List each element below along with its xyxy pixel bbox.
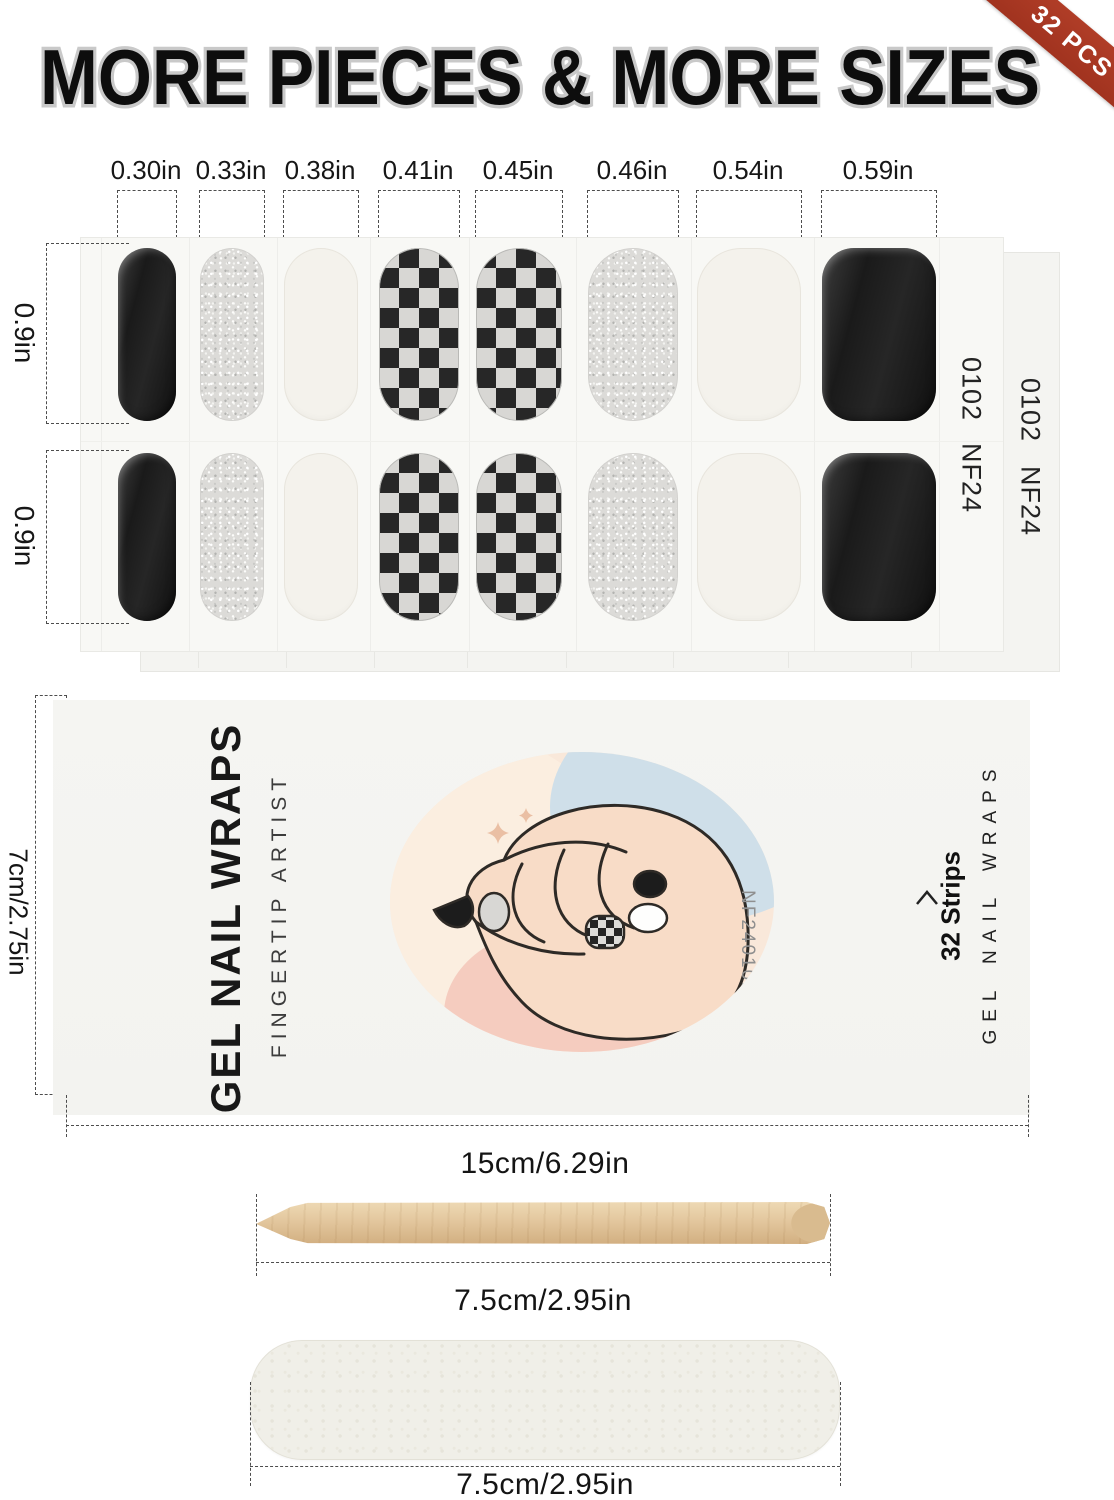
nail-strip — [697, 453, 801, 621]
size-label-1: 0.30in — [98, 155, 194, 186]
sheet-column-divider — [277, 238, 278, 651]
back-sheet-cutline — [566, 652, 567, 668]
white-nail — [629, 904, 667, 932]
front-sheet-code-bottom: NF24 — [956, 443, 987, 513]
nail-strip — [588, 248, 678, 421]
nail-strip — [284, 453, 358, 621]
sheet-row-divider — [81, 441, 1003, 442]
back-sheet-cutline — [374, 652, 375, 668]
size-label-5: 0.45in — [470, 155, 566, 186]
back-sheet-cutline — [673, 652, 674, 668]
headline-text: MORE PIECES & MORE SIZES — [40, 36, 1040, 121]
file-length-label: 7.5cm/2.95in — [395, 1468, 695, 1500]
package-height-label: 7cm/2.75in — [3, 848, 34, 975]
file-measure-tick-right — [840, 1382, 841, 1486]
black-oval-nail — [634, 871, 666, 897]
size-label-6: 0.46in — [584, 155, 680, 186]
cuticle-stick — [256, 1202, 830, 1244]
height-bracket-row2 — [46, 450, 129, 624]
nail-strip — [379, 453, 459, 621]
page-root: MORE PIECES & MORE SIZES 32 PCS 0.30in 0… — [0, 0, 1114, 1500]
sheet-column-divider — [469, 238, 470, 651]
stick-measure-tick-left — [256, 1194, 257, 1276]
size-label-3: 0.38in — [272, 155, 368, 186]
back-sheet-cutline — [198, 652, 199, 668]
size-label-4: 0.41in — [370, 155, 466, 186]
nail-sheet-front — [80, 237, 1004, 652]
width-measure-tick-right — [1028, 1095, 1029, 1137]
package-design-code: NF240102 — [737, 890, 758, 995]
width-measure-tick-left — [66, 1095, 67, 1137]
pcs-ribbon: 32 PCS — [982, 0, 1114, 132]
nail-file — [250, 1340, 840, 1460]
back-sheet-cutline — [467, 652, 468, 668]
back-sheet-cutline — [286, 652, 287, 668]
package: GEL NAIL WRAPS FINGERTIP ARTIST — [53, 700, 1030, 1115]
row2-height-label: 0.9in — [8, 506, 40, 567]
nail-strip — [476, 248, 562, 421]
pcs-ribbon-label: 32 PCS — [1025, 0, 1114, 85]
nail-strip — [379, 248, 459, 421]
sheet-column-divider — [370, 238, 371, 651]
nail-strip — [588, 453, 678, 621]
nail-strip — [284, 248, 358, 421]
back-sheet-cutline — [911, 652, 912, 668]
sheet-column-divider — [576, 238, 577, 651]
package-tagline: FINGERTIP ARTIST — [268, 772, 292, 1058]
hand-illustration: NF240102 — [390, 752, 774, 1052]
size-label-2: 0.33in — [183, 155, 279, 186]
size-label-7: 0.54in — [700, 155, 796, 186]
sheet-column-divider — [814, 238, 815, 651]
back-sheet-code-bottom: NF24 — [1015, 466, 1046, 536]
sheet-column-divider — [691, 238, 692, 651]
back-sheet-code-top: 0102 — [1015, 378, 1046, 442]
nail-strip — [822, 248, 936, 421]
pcs-ribbon-band: 32 PCS — [982, 0, 1114, 132]
width-measure-line — [66, 1125, 1028, 1126]
nail-strip — [476, 453, 562, 621]
row1-height-label: 0.9in — [8, 303, 40, 364]
sheet-column-divider — [939, 238, 940, 651]
nail-strip — [822, 453, 936, 621]
checkered-nail — [586, 916, 624, 948]
front-sheet-code-top: 0102 — [956, 357, 987, 421]
sheet-column-divider — [189, 238, 190, 651]
package-strips-count: 32 Strips — [936, 851, 967, 961]
package-width-label: 15cm/6.29in — [395, 1147, 695, 1181]
package-side-brand: GEL NAIL WRAPS — [980, 761, 1002, 1044]
height-bracket-row1 — [46, 243, 129, 424]
nail-strip — [697, 248, 801, 421]
file-measure-line — [250, 1466, 840, 1467]
package-brand: GEL NAIL WRAPS — [202, 723, 250, 1113]
silver-glitter-nail — [479, 893, 509, 931]
headline: MORE PIECES & MORE SIZES — [36, 36, 1046, 124]
stick-measure-line — [256, 1262, 830, 1263]
file-measure-tick-left — [250, 1382, 251, 1486]
nail-strip — [200, 248, 264, 421]
size-label-8: 0.59in — [830, 155, 926, 186]
stick-measure-tick-right — [830, 1194, 831, 1276]
stick-length-label: 7.5cm/2.95in — [393, 1284, 693, 1318]
nail-strip — [200, 453, 264, 621]
back-sheet-cutline — [788, 652, 789, 668]
